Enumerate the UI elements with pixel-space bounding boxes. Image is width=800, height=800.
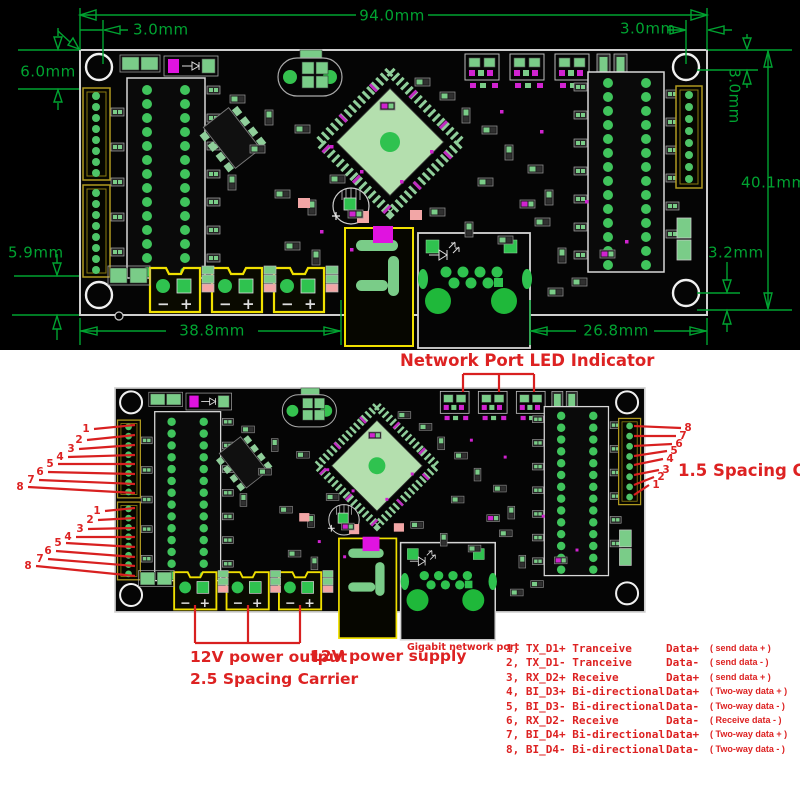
pin-signal: 1, TX_D1+ Tranceive [506,642,632,655]
pin-data: Data- [666,743,699,756]
pin-table-row: 6, RX_D2- ReceiveData-( Receive data - ) [506,714,798,728]
pin-data: Data- [666,656,699,669]
pin-number-label: 1 [82,424,89,435]
pin-number-label: 3 [76,524,83,535]
pin-signal: 2, TX_D1- Tranceive [506,656,632,669]
pin-table-row: 2, TX_D1- TranceiveData-( send data - ) [506,656,798,670]
pin-table-row: 8, BI_D4- Bi-directionalData-( Two-way d… [506,743,798,757]
pin-signal: 3, RX_D2+ Receive [506,671,619,684]
top-view-section: − + − + − + [0,0,800,350]
pin-number-label: 6 [36,467,43,478]
dimension-label-edge-bottom-left: 5.9mm [8,246,64,261]
pin-table-row: 5, BI_D3- Bi-directionalData-( Two-way d… [506,700,798,714]
pin-note: ( send data - ) [710,658,769,668]
pin-data: Data- [666,700,699,713]
pin-data: Data- [666,714,699,727]
dimension-label-segment-right: 26.8mm [583,324,649,339]
dimension-label-board-width: 94.0mm [359,9,425,24]
pin-signal: 7, BI_D4+ Bi-directional [506,728,665,741]
pin-number-label: 4 [64,532,71,543]
pin-note: ( send data + ) [710,644,771,654]
pin-data: Data+ [666,671,699,684]
pin-number-label: 4 [56,452,63,463]
pin-note: ( Receive data - ) [710,716,782,726]
pin-number-label: 1 [93,506,100,517]
pin-number-label: 7 [27,475,34,486]
pin-number-label: 1 [652,480,659,491]
pin-note: ( Two-way data + ) [710,687,787,697]
pin-number-label: 5 [54,538,61,549]
pin-signal: 5, BI_D3- Bi-directional [506,700,665,713]
dimension-label-hole-right-vertical: 3.0mm [727,68,742,124]
pin-signal: 6, RX_D2- Receive [506,714,619,727]
pin-data: Data+ [666,728,699,741]
dimension-label-segment-left: 38.8mm [179,324,245,339]
dimension-label-hole-top-right: 3.0mm [620,22,676,37]
pin-table-row: 4, BI_D3+ Bi-directionalData+( Two-way d… [506,685,798,699]
dimension-label-edge-left: 6.0mm [20,65,76,80]
pin-signal: 8, BI_D4- Bi-directional [506,743,665,756]
pin-number-label: 2 [86,515,93,526]
dimension-label-hole-top-left: 3.0mm [133,23,189,38]
led-indicator-label: Network Port LED Indicator [400,353,540,370]
pin-number-label: 3 [67,444,74,455]
pcb-top-view-image: − + − + − + [0,0,800,350]
dimension-label-board-height: 40.1mm [741,176,800,191]
pin-number-label: 8 [24,561,31,572]
pin-number-label: 5 [46,459,53,470]
carrier-right-label: 1.5 Spacing Carrier [678,463,800,480]
pin-number-label: 8 [16,482,23,493]
pin-number-label: 4 [666,454,673,465]
pin-note: ( Two-way data + ) [710,730,787,740]
pin-signal: 4, BI_D3+ Bi-directional [506,685,665,698]
pin-number-label: 2 [75,435,82,446]
pin-note: ( Two-way data - ) [710,702,785,712]
pin-data: Data+ [666,642,699,655]
dimension-label-hole-bottom-right: 3.2mm [708,246,764,261]
pin-note: ( Two-way data - ) [710,745,785,755]
pin-note: ( send data + ) [710,673,771,683]
pin-table-row: 3, RX_D2+ ReceiveData+( send data + ) [506,671,798,685]
datum-marker [115,312,123,320]
pin-table-row: 7, BI_D4+ Bi-directionalData+( Two-way d… [506,728,798,742]
pin-data: Data+ [666,685,699,698]
network-port-label: Gigabit network port [407,643,519,653]
pcb-product-diagram: − + − + − + [0,0,800,800]
pin-number-label: 7 [36,554,43,565]
carrier-bottom-label: 2.5 Spacing Carrier [190,672,358,688]
pin-number-label: 6 [44,546,51,557]
pin-table-row: 1, TX_D1+ TranceiveData+( send data + ) [506,642,798,656]
pin-description-table: 1, TX_D1+ TranceiveData+( send data + ) … [506,642,798,757]
bottom-view-section: Network Port LED Indicator 1.5 Spacing C… [0,350,800,800]
